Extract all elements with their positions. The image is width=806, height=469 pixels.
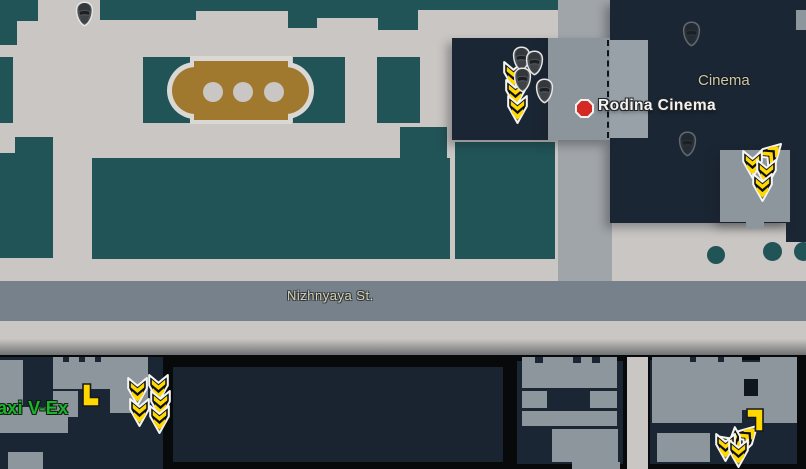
poi-label[interactable]: Rodina Cinema [598,97,716,115]
poi-marker[interactable] [575,99,594,118]
scav-head-icon[interactable] [534,78,555,104]
scav-head-icon[interactable] [512,67,533,93]
loot-marker-icon[interactable] [80,383,100,407]
game-map-canvas[interactable]: Cinema Rodina Cinema Nizhnyaya St. Taxi … [0,0,806,469]
street-label: Nizhnyaya St. [287,288,374,303]
scav-head-icon[interactable] [74,1,95,27]
extract-arrow-icon[interactable] [148,404,171,435]
marker-layer [0,0,806,469]
extract-arrow-icon[interactable] [751,172,774,203]
district-label: Cinema [698,72,750,89]
extract-arrow-icon[interactable] [506,94,529,125]
extract-arrow-icon[interactable] [727,438,750,469]
extract-label[interactable]: Taxi V-Ex [0,398,68,419]
ghost-head-icon[interactable] [681,21,702,47]
ghost-head-icon[interactable] [677,131,698,157]
loot-marker-icon[interactable] [746,408,766,432]
poi-marker-dot [577,101,592,116]
